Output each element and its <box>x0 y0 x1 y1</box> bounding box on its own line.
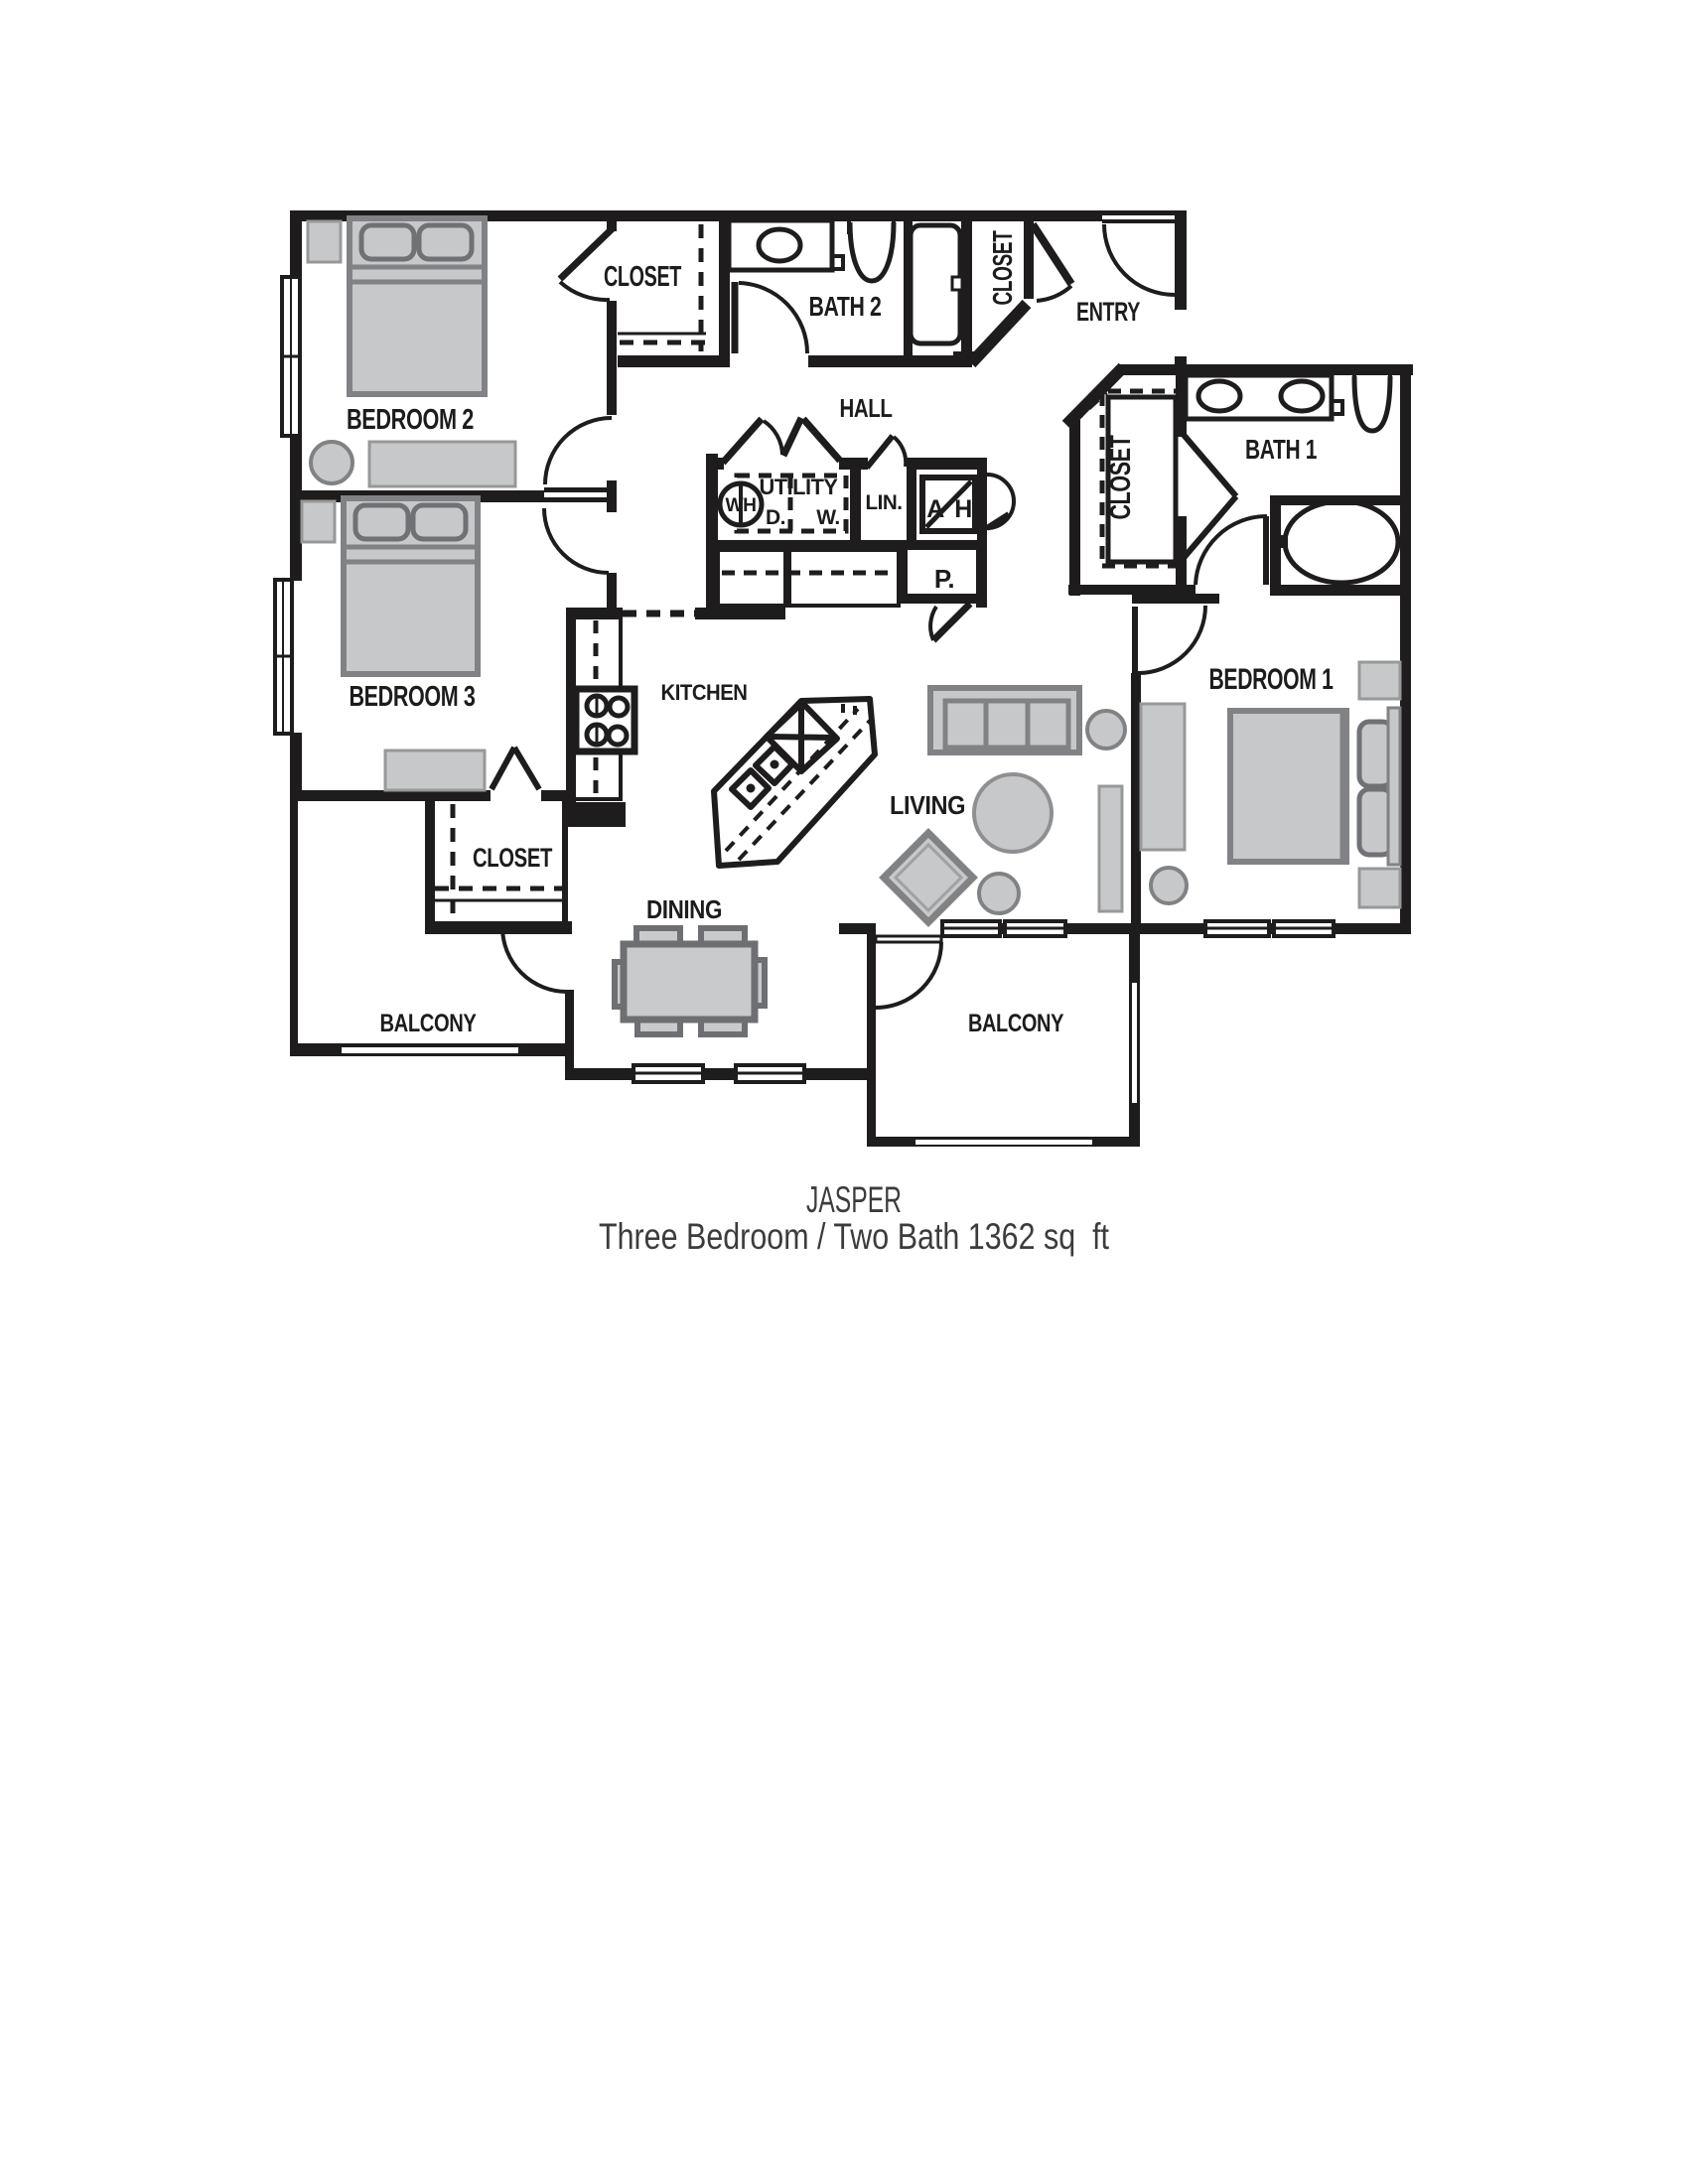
svg-text:A: A <box>926 495 944 523</box>
svg-text:BATH 1: BATH 1 <box>1245 434 1317 465</box>
svg-text:BEDROOM 1: BEDROOM 1 <box>1209 663 1334 696</box>
svg-text:BEDROOM 2: BEDROOM 2 <box>347 404 474 436</box>
svg-text:LIVING: LIVING <box>890 790 965 820</box>
svg-text:W.: W. <box>816 506 840 529</box>
svg-text:H: H <box>954 495 972 523</box>
svg-text:UTILITY: UTILITY <box>760 475 839 499</box>
svg-text:BALCONY: BALCONY <box>380 1010 478 1037</box>
svg-text:P.: P. <box>934 564 954 594</box>
svg-text:WH: WH <box>726 495 757 516</box>
svg-text:ENTRY: ENTRY <box>1076 297 1140 327</box>
svg-text:D.: D. <box>766 506 785 529</box>
svg-text:CLOSET: CLOSET <box>473 843 553 873</box>
svg-text:CLOSET: CLOSET <box>987 230 1018 305</box>
svg-text:CLOSET: CLOSET <box>604 261 682 293</box>
svg-text:KITCHEN: KITCHEN <box>661 680 748 705</box>
svg-text:Three Bedroom / Two Bath 1362: Three Bedroom / Two Bath 1362 sq ft <box>599 1216 1110 1257</box>
svg-text:BATH 2: BATH 2 <box>809 291 882 322</box>
svg-text:BEDROOM 3: BEDROOM 3 <box>350 681 476 713</box>
svg-text:CLOSET: CLOSET <box>1105 435 1137 520</box>
svg-text:BALCONY: BALCONY <box>968 1010 1064 1037</box>
svg-text:JASPER: JASPER <box>806 1179 902 1220</box>
svg-text:DINING: DINING <box>646 894 722 924</box>
svg-text:LIN.: LIN. <box>866 491 903 514</box>
svg-text:HALL: HALL <box>840 393 893 423</box>
